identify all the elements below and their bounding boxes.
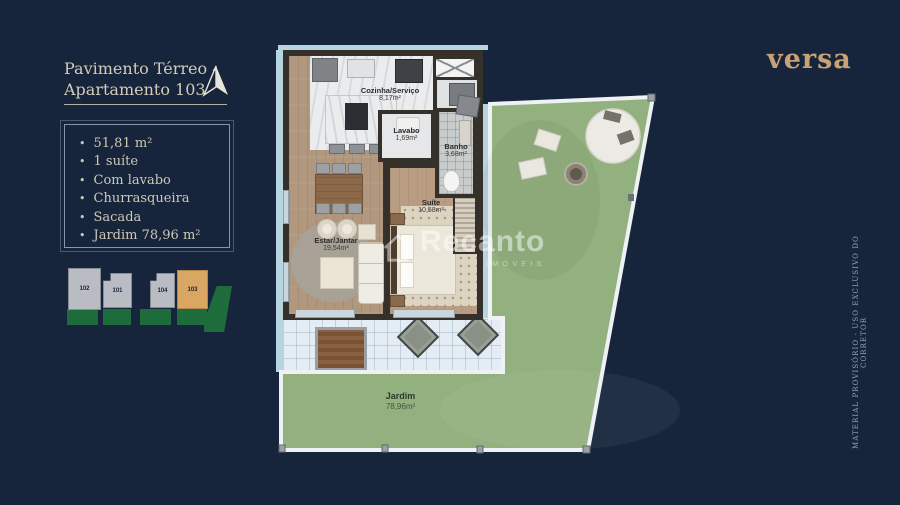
features-box: 51,81 m² 1 suíte Com lavabo Churrasqueir… [64,124,230,248]
watermark-house-icon [383,231,413,265]
minimap-unit-104: 104 [150,273,175,308]
laundry-basket [456,94,481,117]
kitchen-sink [347,59,375,78]
kitchen-appliance [395,59,423,83]
fence-post [583,446,590,453]
armchair [317,219,337,239]
window [283,262,289,302]
kitchen-cooktop [345,103,368,130]
apartment-building: Cozinha/Serviço 8,17m² Lavabo 1,69m² Ban… [283,50,483,320]
building-minimap: 102 101 104 103 [64,264,236,334]
fence-post [382,445,388,452]
label-jardim: Jardim 78,96m² [358,391,443,412]
feature-item: Jardim 78,96 m² [79,227,229,245]
feature-item: 1 suíte [79,153,229,171]
sofa [358,242,384,304]
minimap-garden-strip [140,309,171,325]
dining-chair [332,203,346,214]
fire-pit-center [570,168,582,180]
lounge-mat [534,129,561,151]
minimap-unit-label: 101 [112,288,122,294]
dining-chair [316,203,330,214]
dining-chair [316,163,330,174]
fence-post [628,194,634,201]
minimap-garden-diagonal [204,286,232,332]
feature-item: Sacada [79,209,229,227]
service-nook [433,80,477,108]
fence-post [648,94,655,101]
realtor-watermark: Recanto IMÓVEIS [383,227,545,268]
fire-pit [565,163,587,185]
room-area: 78,96m² [358,402,443,412]
minimap-garden-strip [177,309,207,325]
grass-highlight [440,370,680,450]
window [283,190,289,224]
minimap-unit-label: 103 [187,287,197,293]
fence-post [477,446,483,453]
coffee-table [320,257,354,289]
bar-stool [329,144,345,154]
room-name: Jardim [358,391,443,402]
garden-patio-circle [586,109,640,163]
north-arrow-icon [202,64,230,98]
room-banho [435,108,477,198]
lavabo-sink [396,117,420,132]
sliding-door [295,309,355,318]
patio-lounger [617,130,635,145]
nightstand [390,213,405,225]
features-list: 51,81 m² 1 suíte Com lavabo Churrasqueir… [65,135,229,246]
shaft-hatch [433,56,477,80]
dining-chair [348,203,362,214]
terrace-sacada [283,318,503,372]
minimap-unit-103-highlighted: 103 [177,270,208,309]
patio-lounger [603,110,622,123]
title-line1: Pavimento Térreo - [64,59,218,78]
walkway-right [483,104,490,318]
terrace-chair [457,314,499,356]
walkway-left [276,50,283,372]
minimap-garden-strip [67,309,98,325]
floorplan-marketing-page: Pavimento Térreo - Apartamento 103 51,81… [0,0,900,505]
minimap-unit-102: 102 [68,268,101,310]
title-line2: Apartamento 103 [64,80,206,99]
minimap-unit-label: 104 [157,288,167,294]
watermark-brand: Recanto [420,225,545,258]
toilet [443,170,460,192]
minimap-garden-strip [103,309,131,325]
title-divider [64,104,227,105]
minimap-unit-label: 102 [79,286,89,292]
nightstand [390,295,405,307]
terrace-wood-table [315,327,367,371]
bath-vanity [459,120,471,146]
feature-item: Com lavabo [79,172,229,190]
watermark-text: Recanto IMÓVEIS [420,227,545,268]
side-table [358,224,376,240]
sliding-door [393,309,455,318]
room-lavabo [378,110,435,162]
terrace-chair [397,316,439,358]
feature-item: 51,81 m² [79,135,229,153]
watermark-sub: IMÓVEIS [420,259,545,268]
armchair [337,219,357,239]
minimap-unit-101: 101 [103,273,132,308]
feature-item: Churrasqueira [79,190,229,208]
kitchen-cabinet [312,58,338,82]
bar-stool [349,144,365,154]
fence-post [279,445,285,452]
lounge-mat [519,157,547,179]
dining-chair [348,163,362,174]
versa-logo: versa [767,44,852,75]
dining-chair [332,163,346,174]
disclaimer-vertical-text: MATERIAL PROVISÓRIO - USO EXCLUSIVO DO C… [852,226,868,458]
